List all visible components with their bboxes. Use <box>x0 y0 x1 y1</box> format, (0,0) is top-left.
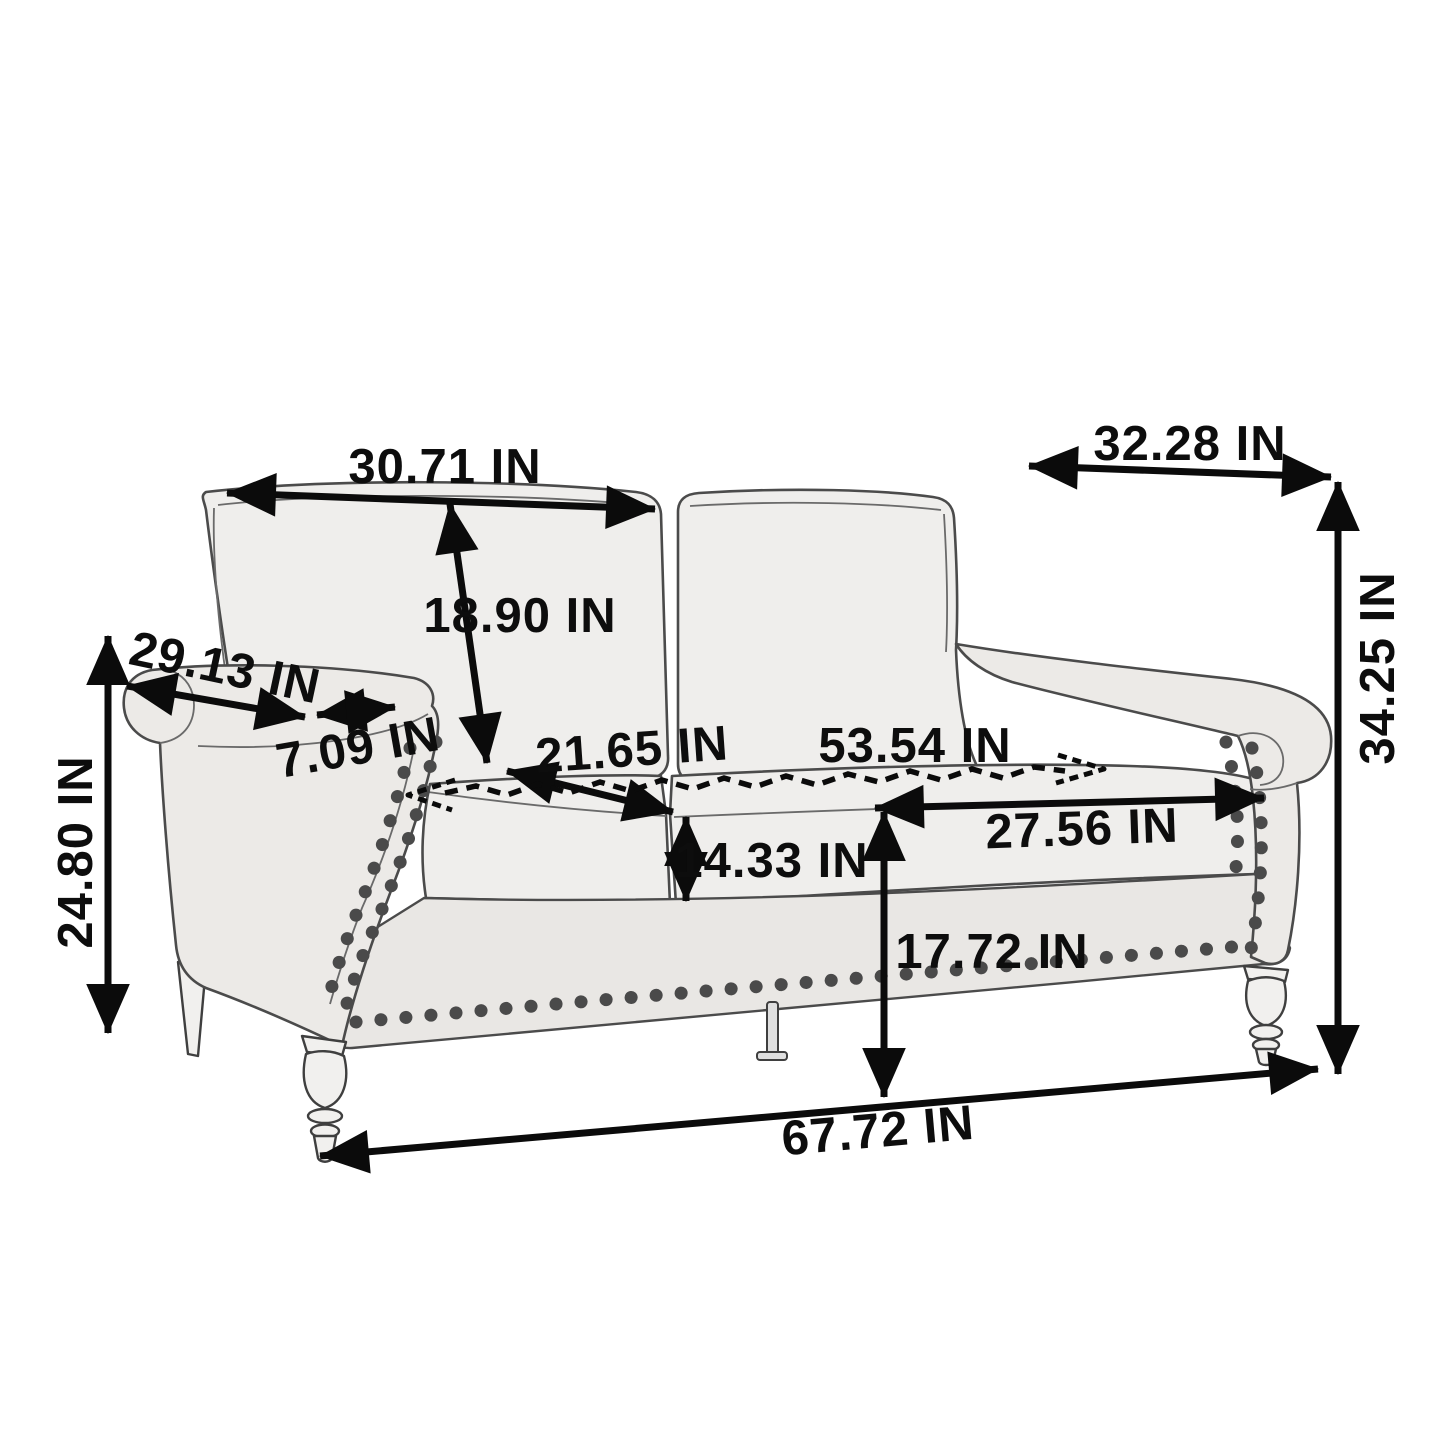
dim-arm-height-label: 24.80 IN <box>49 755 103 948</box>
seat-cushion-left <box>423 775 670 904</box>
dim-overall-width-label: 67.72 IN <box>779 1096 976 1167</box>
sofa-dimension-diagram: 30.71 IN 18.90 IN 29.13 IN 7.09 IN 21.65… <box>0 0 1445 1445</box>
sofa-frame-front <box>332 874 1290 1048</box>
dim-back-cushion-height-label: 18.90 IN <box>423 589 616 643</box>
dim-overall-depth-label: 32.28 IN <box>1093 417 1286 471</box>
dim-back-cushion-width-label: 30.71 IN <box>348 440 541 494</box>
dim-seat-width-total-label: 53.54 IN <box>818 719 1011 773</box>
dim-seat-cushion-thickness-label: 14.33 IN <box>675 834 868 888</box>
diagram-canvas: 30.71 IN 18.90 IN 29.13 IN 7.09 IN 21.65… <box>0 0 1445 1445</box>
dim-seat-cushion-width-label: 27.56 IN <box>984 799 1179 860</box>
sofa-leg-front-left <box>302 1036 346 1162</box>
dim-seat-height-label: 17.72 IN <box>895 925 1088 979</box>
dim-overall-height-label: 34.25 IN <box>1351 571 1405 764</box>
sofa-leg-front-right <box>1244 966 1288 1065</box>
